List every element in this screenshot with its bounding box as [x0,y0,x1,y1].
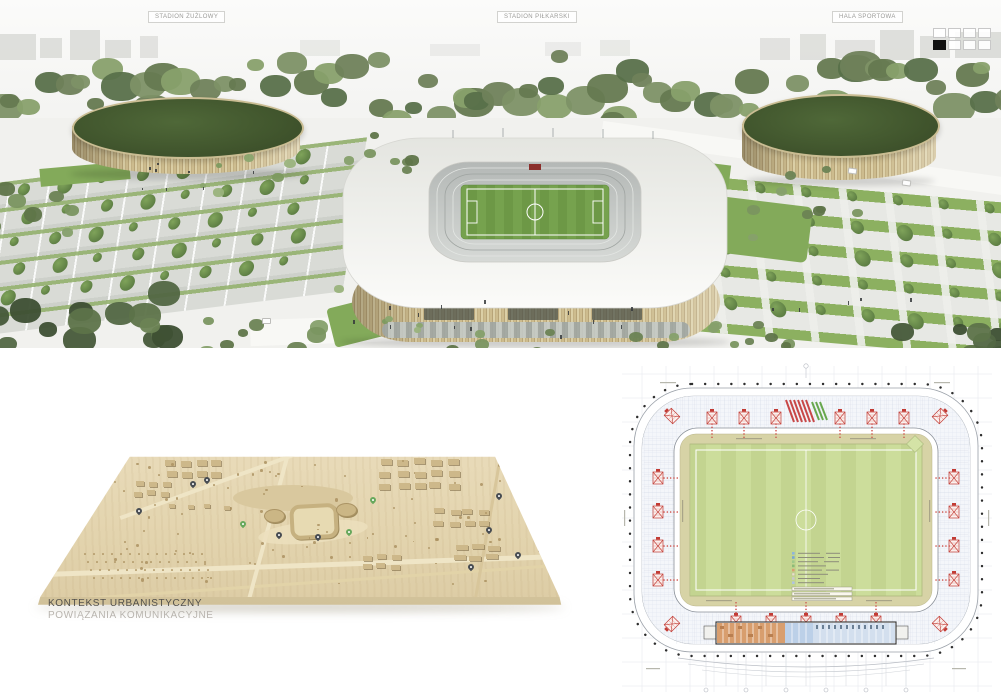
tree [247,207,257,217]
model-tree [489,541,492,544]
stadium-roof-ring [343,128,727,308]
model-building [197,460,207,466]
model-tree [145,561,148,564]
tree [213,188,224,196]
pitch-plan [680,434,932,606]
model-tree [511,489,513,491]
tree [854,250,872,268]
model-tree [498,464,501,467]
model-tree [394,545,397,548]
model-building [449,484,460,490]
tree [48,231,62,245]
model-building [454,555,466,560]
model-orchard-tree [135,569,137,571]
model-orchard-tree [93,553,95,555]
tree [896,224,914,242]
model-tree [313,541,316,544]
model-tree [205,580,208,583]
model-building [431,460,442,466]
model-building [169,504,175,508]
tree [967,323,991,341]
model-tree [498,538,501,541]
model-building [399,483,410,489]
model-caption-subtitle: POWIĄZANIA KOMUNIKACYJNE [48,610,214,621]
model-building [392,555,401,560]
tree [258,179,275,196]
model-orchard-tree [132,561,134,563]
model-tree [413,541,415,543]
tree [801,187,812,198]
model-tree [176,497,178,499]
presentation-board: { "board": { "top_labels": { "left": "ST… [0,0,1001,700]
model-building [479,510,489,515]
model-building [415,472,426,478]
person-figure [560,335,562,339]
model-building [456,545,468,550]
model-orchard-tree [186,561,188,563]
tree [984,203,995,214]
model-tree [177,533,179,535]
tree [938,199,949,210]
tree [49,191,64,203]
model-building [377,554,386,559]
model-orchard-tree [120,553,122,555]
model-building [391,565,400,570]
car [902,179,912,186]
model-tree [230,507,232,509]
tree [211,238,221,248]
tree [238,329,248,337]
model-orchard-tree [201,553,203,555]
tree [850,220,865,234]
model-speedway-hall [264,509,285,523]
tree [68,308,101,334]
person-figure [593,320,595,324]
model-tree [349,556,351,558]
model-railway [474,440,505,598]
model-tree [158,474,160,476]
model-tree [314,464,316,466]
model-orchard-tree [162,569,164,571]
tree [278,256,288,266]
model-orchard-tree [177,561,179,563]
model-tree [349,542,351,544]
model-building [211,472,221,478]
tree [861,308,876,322]
model-orchard-tree [102,577,104,579]
model-tree [171,463,174,466]
model-orchard-tree [198,569,200,571]
model-tree [521,476,524,479]
tree [229,78,246,90]
model-building [381,459,392,465]
tree [260,75,291,97]
model-tree [275,475,277,477]
tree [180,189,190,199]
model-building [486,554,498,559]
model-orchard-tree [192,577,194,579]
tree [24,207,43,222]
model-orchard-tree [111,553,113,555]
model-orchard-tree [138,553,140,555]
model-orchard-tree [129,553,131,555]
person-figure [188,171,190,174]
car [262,318,271,324]
model-tree [143,530,145,532]
model-building [469,556,481,561]
model-building [472,544,484,549]
model-orchard-tree [195,561,197,563]
model-building [182,472,192,478]
tree [475,339,489,348]
tree [307,327,327,342]
model-orchard-tree [108,569,110,571]
model-tree [120,466,122,468]
model-tree [260,469,263,472]
model-building [448,459,459,465]
tree [334,285,344,293]
model-orchard-tree [96,561,98,563]
tree [991,262,1001,280]
tree [812,275,823,286]
page-indicator-cell [948,40,961,50]
model-building [211,460,221,466]
model-tree [435,563,437,565]
model-orchard-tree [159,561,161,563]
tree [39,322,58,337]
tree [207,211,224,228]
person-figure [418,313,420,317]
tree [51,256,68,273]
tree [730,341,739,348]
model-orchard-tree [84,553,86,555]
model-tree [123,490,125,492]
tree [119,274,136,291]
tree [781,342,791,348]
model-tree [261,542,264,545]
tree [250,232,264,246]
map-pin-icon [495,492,503,500]
model-building [134,492,142,497]
tree [708,324,719,333]
tree [786,75,809,92]
model-tree [272,549,274,551]
car [848,167,858,174]
sports-hall-roof [742,94,940,158]
tree [519,84,538,97]
model-orchard-tree [114,561,116,563]
tree [669,333,679,341]
model-tree [436,538,439,541]
tree [203,317,214,326]
tree [988,232,1001,246]
model-tree [538,550,540,552]
tree [852,209,862,217]
model-building [163,482,171,487]
model-orchard-tree [93,577,95,579]
model-building [363,564,372,569]
model-tree [428,547,430,549]
model-tree [207,577,209,579]
tree [753,321,764,329]
model-tree [204,563,206,565]
tree [755,183,766,194]
tree [12,262,26,276]
model-tree [459,516,462,519]
model-building [161,492,169,497]
map-pin-icon [239,520,247,528]
football-stadium-roof-and-bowl [333,112,737,310]
tree [167,216,181,230]
tree [131,247,145,261]
person-figure [484,300,486,304]
tree [629,332,643,343]
model-tree [411,498,413,500]
floor-plan-drawing [616,360,998,698]
model-orchard-tree [174,553,176,555]
model-building [398,471,409,477]
person-figure [389,306,391,310]
model-orchard-tree [210,577,212,579]
model-tree [213,484,215,486]
tree [531,347,543,348]
model-orchard-tree [192,553,194,555]
person-figure [353,320,355,324]
person-figure [149,167,151,170]
model-tree [485,512,487,514]
model-tree [539,550,541,552]
person-figure [848,301,850,305]
model-building [449,471,460,477]
tree [390,158,399,165]
aerial-rendering: STADION ŻUŻLOWY STADION PIŁKARSKI HALA S… [0,0,1001,348]
person-figure [166,188,168,191]
model-orchard-tree [165,577,167,579]
tree [802,210,813,219]
model-tree [499,480,501,482]
roof-masts [453,128,653,139]
model-tree [520,468,522,470]
model-orchard-tree [87,561,89,563]
tree [745,338,753,344]
model-orchard-tree [180,569,182,571]
model-tree [148,516,151,519]
tree [0,94,19,107]
model-orchard-tree [102,553,104,555]
model-orchard-tree [183,553,185,555]
context-model-photo: KONTEKST URBANISTYCZNY POWIĄZANIA KOMUNI… [18,405,588,640]
tree [891,323,914,341]
model-tree [252,473,254,475]
building-strip [704,622,908,644]
model-building [204,504,210,508]
tree [287,342,306,348]
model-orchard-tree [111,577,113,579]
model-orchard-tree [207,569,209,571]
render-label-right: HALA SPORTOWA [832,11,903,23]
model-orchard-tree [138,577,140,579]
model-building [147,490,155,495]
tree [857,279,868,290]
model-tree [136,463,139,466]
person-figure [142,188,144,191]
tree [942,228,953,239]
model-orchard-tree [120,577,122,579]
model-tree [227,487,230,490]
model-orchard-tree [141,561,143,563]
model-building [379,484,390,490]
tree [335,54,369,79]
model-orchard-tree [168,561,170,563]
tree [446,345,459,348]
tree [140,318,159,333]
model-building [376,563,385,568]
model-tree [414,522,417,525]
model-tree [335,498,338,501]
model-caption-title: KONTEKST URBANISTYCZNY [48,598,214,609]
model-caption: KONTEKST URBANISTYCZNY POWIĄZANIA KOMUNI… [48,598,214,621]
model-orchard-tree [156,553,158,555]
model-tree [338,583,340,585]
model-building [363,556,372,561]
page-indicator-cell [963,28,976,38]
person-figure [253,171,255,174]
model-building [434,508,444,513]
model-tree [136,544,139,547]
model-orchard-tree [189,569,191,571]
map-pin-icon [369,496,377,504]
tree [368,52,391,68]
stadium-floor-plan [616,360,998,698]
tree [808,246,819,257]
model-tree [306,546,308,548]
render-label-center: STADION PIŁKARSKI [497,11,577,23]
person-figure [621,325,623,329]
tree [159,270,169,280]
model-orchard-tree [150,561,152,563]
tree [247,59,264,71]
model-tree [326,531,328,533]
page-indicator-cell [978,28,991,38]
tree [321,88,347,107]
tree [0,182,15,196]
person-figure [470,327,472,331]
tree [100,199,114,213]
tree [139,193,156,210]
person-figure [203,187,205,190]
model-building [379,472,390,478]
tree [220,340,234,349]
model-tree [467,516,470,519]
tree [171,242,188,259]
model-tree [452,583,454,585]
speedway-stadium-roof [72,97,304,159]
person-figure [568,311,570,315]
model-orchard-tree [201,577,203,579]
person-figure [441,305,443,309]
tree [128,222,138,232]
model-orchard-tree [147,577,149,579]
model-orchard-tree [90,569,92,571]
page-indicator-cell [963,40,976,50]
model-building [488,546,500,551]
model-building [429,482,440,488]
model-tree [372,533,374,535]
page-indicator [933,28,991,50]
tree [405,155,418,166]
model-building [479,521,489,526]
tree [40,285,50,295]
person-figure [860,298,862,302]
person-figure [631,307,633,311]
tree [892,195,903,206]
tree [344,156,354,164]
model-building [462,509,472,514]
tree [148,281,180,306]
model-tree [141,578,144,581]
model-tree [405,535,407,537]
tree [847,191,858,202]
model-tree [344,475,346,477]
model-orchard-tree [156,577,158,579]
tree [199,265,213,279]
model-stadium [289,503,339,540]
tree [92,252,102,262]
map-pin-icon [189,480,197,488]
tree [0,337,17,348]
render-label-left: STADION ŻUŻLOWY [148,11,225,23]
model-orchard-tree [144,569,146,571]
model-tree [482,533,484,535]
model-tree [126,548,128,550]
model-orchard-tree [105,561,107,563]
person-figure [454,326,456,330]
model-orchard-tree [117,569,119,571]
model-building [431,470,442,476]
tree [735,69,769,93]
tree [414,327,421,333]
model-tree [484,580,486,582]
tree [822,166,831,173]
model-tree [402,460,404,462]
model-orchard-tree [165,553,167,555]
model-tree [260,510,262,512]
tree [949,287,960,298]
model-tree [148,466,151,469]
model-orchard-tree [174,577,176,579]
person-figure [155,169,157,172]
model-building [414,458,425,464]
model-tree [508,461,510,463]
tree [17,99,40,116]
tree [904,58,938,82]
tree [816,206,826,214]
model-orchard-tree [171,569,173,571]
tree [10,298,42,323]
tree [766,271,777,282]
model-orchard-tree [99,569,101,571]
model-building [167,471,177,477]
page-indicator-cell [948,28,961,38]
tree [815,304,826,315]
tree [945,258,956,269]
model-building [149,482,157,487]
tree [748,234,758,241]
person-figure [390,325,392,329]
model-orchard-tree [147,553,149,555]
tree [747,205,760,215]
tree [62,228,73,236]
